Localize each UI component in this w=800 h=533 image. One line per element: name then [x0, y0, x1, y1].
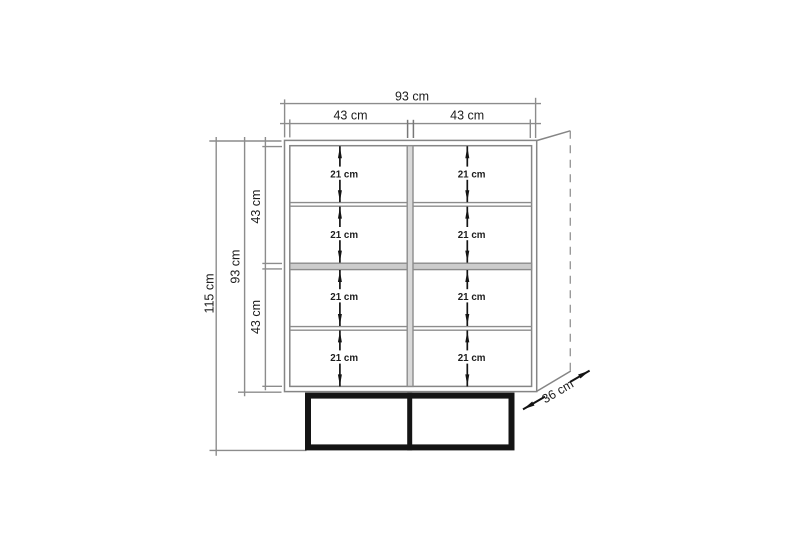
- svg-text:43 cm: 43 cm: [333, 108, 367, 122]
- svg-text:21 cm: 21 cm: [458, 353, 486, 364]
- svg-text:36 cm: 36 cm: [540, 377, 576, 406]
- svg-text:43 cm: 43 cm: [249, 300, 263, 334]
- svg-text:21 cm: 21 cm: [458, 230, 486, 241]
- svg-text:93 cm: 93 cm: [395, 89, 429, 103]
- svg-text:115 cm: 115 cm: [202, 273, 216, 313]
- svg-text:21 cm: 21 cm: [458, 169, 486, 180]
- svg-text:21 cm: 21 cm: [330, 230, 358, 241]
- svg-text:21 cm: 21 cm: [330, 169, 358, 180]
- svg-text:43 cm: 43 cm: [249, 190, 263, 224]
- svg-text:93 cm: 93 cm: [228, 250, 242, 284]
- svg-text:21 cm: 21 cm: [458, 292, 486, 303]
- svg-text:21 cm: 21 cm: [330, 292, 358, 303]
- svg-text:21 cm: 21 cm: [330, 353, 358, 364]
- svg-text:43 cm: 43 cm: [450, 108, 484, 122]
